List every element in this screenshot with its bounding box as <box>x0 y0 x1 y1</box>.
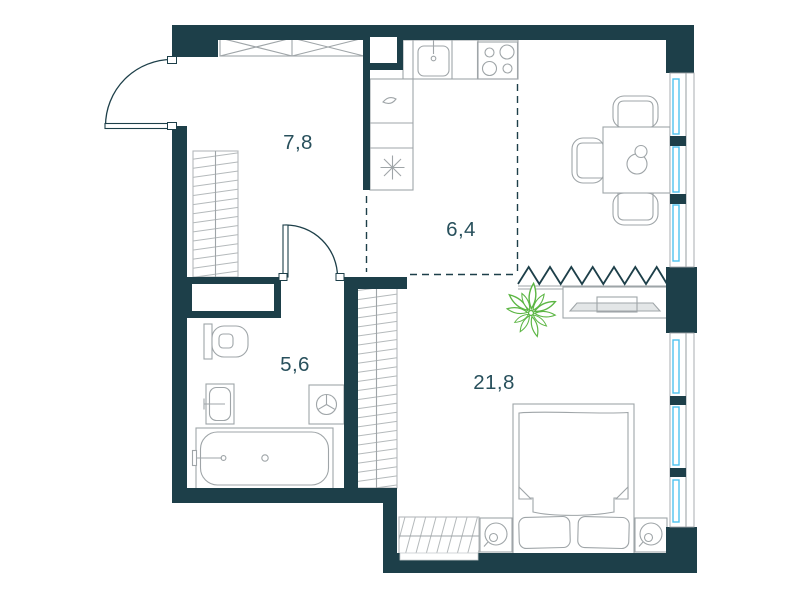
door-swing-arc <box>106 60 173 127</box>
nightstand-left <box>480 518 512 552</box>
bathtub-icon <box>193 428 334 489</box>
dining-chair-bottom <box>613 193 658 225</box>
bed <box>513 404 634 554</box>
tv-stand <box>563 287 667 318</box>
bathroom-door <box>279 225 344 281</box>
entry-wall-block <box>172 25 218 57</box>
floor-plan-svg: 7,8 6,4 5,6 21,8 <box>0 0 800 600</box>
window-mullion <box>670 194 686 204</box>
dining-chair-top <box>613 96 658 128</box>
room-area-label-bathroom: 5,6 <box>280 353 310 376</box>
floor-plan: 7,8 6,4 5,6 21,8 <box>0 0 800 600</box>
washbasin-icon <box>204 384 234 424</box>
dining-chair-left <box>572 138 604 183</box>
shaft-duct <box>192 284 274 311</box>
blanket <box>519 412 628 515</box>
window-mullion <box>670 396 686 405</box>
hall-wardrobe <box>193 151 238 277</box>
door-leaf <box>105 124 172 129</box>
kitchen-cabinets <box>370 79 413 190</box>
window-mullion <box>670 136 686 146</box>
window-lower <box>670 333 694 527</box>
living-wardrobe <box>356 283 397 488</box>
pillow <box>578 516 630 548</box>
plant-icon <box>507 283 557 337</box>
toilet-icon <box>204 324 248 359</box>
pillow <box>519 516 571 548</box>
window-upper <box>670 73 694 267</box>
wall-niche <box>400 553 478 560</box>
fridge-snowflake-icon <box>381 156 405 180</box>
dining-table <box>603 127 670 193</box>
tv-icon <box>570 303 660 311</box>
folding-partition <box>518 267 668 289</box>
washing-machine-icon <box>309 385 344 424</box>
room-area-label-kitchen: 6,4 <box>446 218 476 241</box>
entrance-door <box>105 57 177 130</box>
window-mullion <box>670 468 686 477</box>
door-swing-arc <box>286 225 338 277</box>
door-leaf <box>283 225 288 277</box>
hall-closet <box>220 38 364 56</box>
room-area-label-hallway: 7,8 <box>283 131 313 154</box>
kitchen-counter <box>403 40 518 79</box>
room-area-label-living-room: 21,8 <box>473 371 515 394</box>
nightstand-right <box>635 518 667 552</box>
